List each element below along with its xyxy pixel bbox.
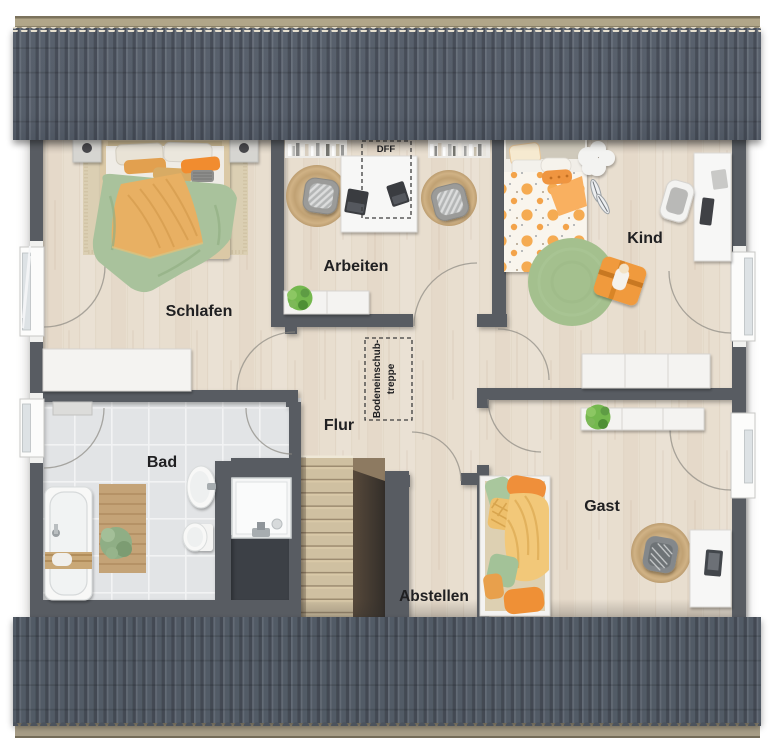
svg-text:Arbeiten: Arbeiten [324, 258, 389, 275]
svg-text:Bad: Bad [147, 454, 177, 471]
svg-text:treppe: treppe [386, 363, 397, 394]
svg-text:Kind: Kind [627, 230, 663, 247]
svg-text:Bodeneinschub-: Bodeneinschub- [372, 340, 383, 418]
svg-text:Flur: Flur [324, 417, 354, 434]
svg-text:Gast: Gast [584, 498, 620, 515]
svg-text:Schlafen: Schlafen [166, 303, 233, 320]
svg-text:DFF: DFF [377, 144, 396, 155]
svg-text:Abstellen: Abstellen [399, 588, 469, 605]
